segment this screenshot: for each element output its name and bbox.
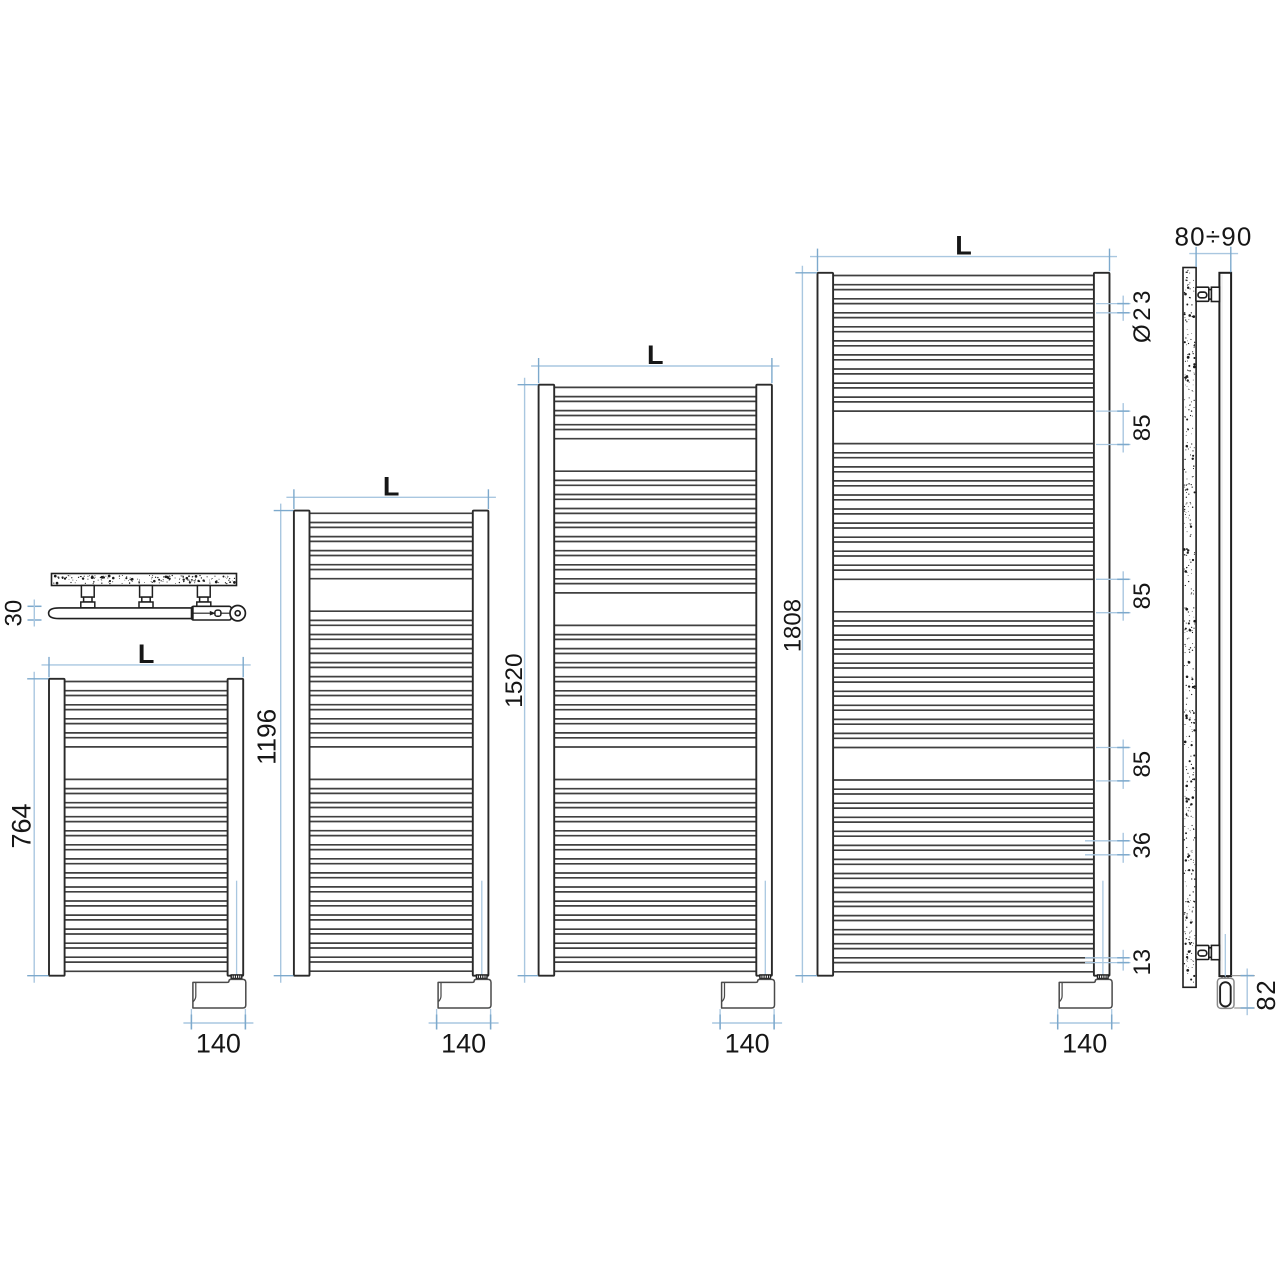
svg-text:Ø23: Ø23 [1129,287,1156,343]
svg-text:L: L [383,471,400,501]
svg-text:85: 85 [1129,751,1156,778]
svg-text:140: 140 [1062,1028,1107,1058]
svg-text:140: 140 [725,1028,770,1058]
svg-text:13: 13 [1129,949,1156,976]
svg-text:1808: 1808 [779,599,806,652]
svg-text:140: 140 [196,1028,241,1058]
svg-text:L: L [138,639,155,669]
svg-text:764: 764 [7,803,37,848]
svg-text:1520: 1520 [501,653,528,708]
svg-text:30: 30 [1,600,28,627]
svg-text:85: 85 [1129,414,1156,441]
svg-text:80÷90: 80÷90 [1174,222,1252,252]
svg-text:85: 85 [1129,583,1156,610]
svg-text:L: L [955,231,972,261]
svg-text:140: 140 [441,1028,486,1058]
svg-text:1196: 1196 [252,709,282,765]
svg-text:82: 82 [1251,979,1280,1011]
svg-text:36: 36 [1129,832,1156,859]
svg-text:L: L [647,340,664,370]
